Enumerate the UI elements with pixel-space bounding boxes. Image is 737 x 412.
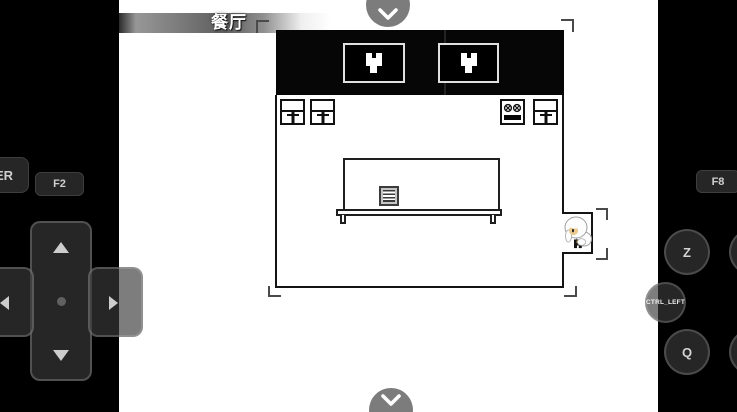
table-rim — [336, 209, 502, 216]
table-leg — [340, 215, 346, 224]
room-right-wall-lower — [562, 252, 564, 288]
chair-crossbar — [540, 114, 552, 116]
stove-sprite — [500, 99, 525, 125]
q-key-button[interactable]: Q — [664, 329, 710, 375]
chair-sprite — [280, 99, 305, 125]
dpad-right-arrow-icon[interactable] — [109, 296, 118, 310]
character-focus-bracket-top — [596, 208, 608, 220]
character-sprite — [564, 216, 592, 249]
dpad-left-arrow-icon[interactable] — [0, 296, 9, 310]
location-banner-text: 餐厅 — [211, 13, 247, 32]
chair-crossbar — [287, 114, 299, 116]
game-viewport: 餐厅 — [0, 0, 737, 412]
z-key-label: Z — [683, 245, 691, 260]
dpad-down-arrow-icon[interactable] — [53, 350, 69, 361]
z-key-button[interactable]: Z — [664, 229, 710, 275]
menu-book-sprite — [379, 186, 399, 206]
long-table-sprite — [343, 158, 500, 211]
chair-sprite — [310, 99, 335, 125]
chevron-down-icon — [380, 394, 402, 407]
character-focus-bracket-bottom — [596, 248, 608, 260]
f2-key-button[interactable]: F2 — [35, 172, 84, 196]
ctrl-left-key-button[interactable]: CTRL_LEFT — [645, 282, 686, 323]
chair-crossbar — [317, 114, 329, 116]
wall-frame — [438, 43, 499, 83]
camera-bracket-bottom-right — [564, 286, 577, 297]
room-right-wall-upper — [562, 95, 564, 214]
heart-emblem-icon — [461, 53, 477, 73]
room-left-wall — [275, 95, 277, 288]
chair-sprite — [533, 99, 558, 125]
q-key-label: Q — [682, 345, 692, 360]
menu-book-pages — [383, 190, 395, 202]
oven-door — [504, 115, 521, 120]
camera-bracket-top-left — [256, 20, 269, 33]
f2-key-label: F2 — [53, 178, 66, 190]
room-bottom-wall — [275, 286, 564, 288]
wall-frame — [343, 43, 405, 83]
chevron-down-icon — [377, 8, 399, 21]
heart-emblem-icon — [366, 53, 382, 73]
f8-key-button[interactable]: F8 — [696, 170, 737, 193]
doorway-alcove-bottom — [562, 252, 593, 254]
emulator-screen: 餐厅 — [0, 0, 737, 412]
f8-key-label: F8 — [712, 176, 725, 188]
ctrl-left-key-label: CTRL_LEFT — [646, 299, 685, 306]
dpad-up-arrow-icon[interactable] — [53, 242, 69, 253]
enter-key-button[interactable]: ER — [0, 157, 29, 193]
enter-key-label: ER — [0, 168, 13, 183]
table-leg — [490, 215, 496, 224]
doorway-alcove-top — [562, 212, 593, 214]
room-top-wall — [276, 30, 564, 95]
dpad-center-dot-icon — [57, 297, 66, 306]
stove-burners-icon — [502, 103, 523, 114]
